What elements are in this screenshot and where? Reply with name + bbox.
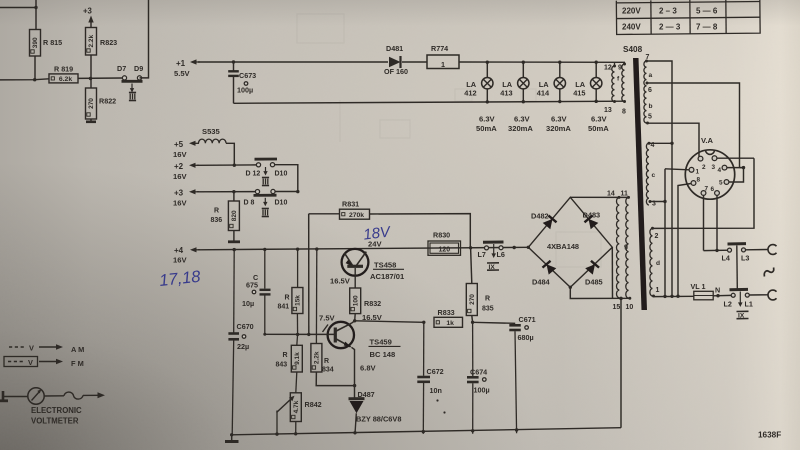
svg-text:BC 148: BC 148	[370, 350, 396, 359]
svg-text:C673: C673	[239, 71, 256, 80]
svg-text:C671: C671	[519, 315, 536, 324]
svg-text:D485: D485	[585, 278, 603, 287]
svg-text:R842: R842	[305, 400, 322, 409]
svg-text:VL 1: VL 1	[691, 282, 706, 291]
svg-text:11: 11	[621, 191, 629, 198]
svg-text:16V: 16V	[173, 199, 187, 208]
svg-text:R774: R774	[431, 44, 448, 53]
svg-text:22µ: 22µ	[237, 342, 249, 351]
svg-text:15: 15	[613, 304, 621, 311]
svg-text:9.1k: 9.1k	[294, 352, 301, 365]
svg-text:R: R	[485, 296, 490, 303]
svg-text:9: 9	[618, 65, 622, 72]
svg-text:L2: L2	[724, 300, 732, 309]
svg-text:D481: D481	[386, 44, 403, 53]
svg-text:820: 820	[231, 210, 238, 221]
svg-text:D483: D483	[583, 211, 601, 220]
svg-text:S535: S535	[202, 127, 221, 136]
svg-text:R: R	[324, 358, 329, 365]
svg-text:C674: C674	[470, 368, 487, 377]
svg-text:D482: D482	[531, 212, 549, 221]
svg-text:AC187/01: AC187/01	[370, 272, 405, 281]
svg-text:+5: +5	[174, 140, 184, 149]
svg-text:L7: L7	[478, 250, 486, 259]
svg-text:C670: C670	[237, 322, 254, 331]
svg-text:R830: R830	[433, 231, 450, 240]
svg-text:4: 4	[718, 167, 722, 174]
svg-text:5 — 6: 5 — 6	[696, 7, 718, 16]
svg-text:100: 100	[352, 295, 359, 306]
svg-text:F M: F M	[71, 359, 84, 368]
svg-text:V: V	[28, 358, 33, 367]
svg-text:b: b	[649, 103, 653, 110]
svg-text:4XBA148: 4XBA148	[547, 242, 579, 251]
svg-text:R823: R823	[100, 38, 117, 47]
svg-text:D9: D9	[134, 64, 143, 73]
svg-text:D484: D484	[532, 278, 551, 287]
svg-text:5.5V: 5.5V	[174, 69, 191, 78]
svg-text:15k: 15k	[295, 295, 302, 306]
svg-text:+4: +4	[174, 246, 184, 255]
svg-text:13: 13	[604, 107, 612, 114]
svg-text:415: 415	[573, 88, 585, 97]
svg-text:1: 1	[656, 287, 660, 294]
svg-text:R833: R833	[438, 308, 455, 317]
svg-text:834: 834	[322, 367, 334, 374]
svg-text:d: d	[656, 260, 660, 267]
svg-text:R 815: R 815	[43, 38, 62, 47]
svg-text:390: 390	[32, 37, 39, 48]
svg-text:2.2k: 2.2k	[314, 351, 321, 364]
svg-text:50mA: 50mA	[588, 124, 609, 133]
svg-text:8: 8	[697, 177, 701, 184]
svg-text:10n: 10n	[430, 386, 442, 395]
svg-text:2.2k: 2.2k	[88, 34, 95, 47]
svg-text:VOLTMETER: VOLTMETER	[31, 417, 79, 426]
svg-text:100µ: 100µ	[474, 385, 490, 394]
svg-text:1k: 1k	[446, 320, 454, 327]
svg-text:R: R	[285, 295, 290, 302]
svg-text:413: 413	[500, 88, 512, 97]
svg-text:6.3V: 6.3V	[591, 115, 608, 124]
svg-text:8: 8	[622, 109, 626, 116]
svg-text:675: 675	[246, 281, 258, 290]
svg-text:835: 835	[482, 306, 494, 313]
svg-text:IX: IX	[738, 313, 745, 320]
svg-text:240V: 240V	[622, 23, 641, 32]
svg-text:g: g	[624, 243, 628, 250]
svg-text:50mA: 50mA	[476, 124, 497, 133]
svg-text:a: a	[649, 72, 653, 79]
svg-text:412: 412	[464, 88, 476, 97]
svg-text:OF 160: OF 160	[384, 67, 408, 76]
svg-text:+3: +3	[83, 7, 93, 16]
svg-text:841: 841	[278, 304, 290, 311]
svg-text:270: 270	[88, 98, 95, 109]
svg-text:7: 7	[705, 186, 709, 193]
svg-text:R: R	[214, 208, 219, 215]
svg-text:414: 414	[537, 88, 550, 97]
svg-text:V: V	[29, 344, 34, 353]
svg-text:R822: R822	[99, 97, 116, 106]
svg-text:5: 5	[719, 180, 723, 187]
svg-text:6.2k: 6.2k	[59, 76, 72, 83]
svg-text:R831: R831	[342, 200, 359, 209]
svg-text:320mA: 320mA	[546, 124, 571, 133]
svg-text:S408: S408	[623, 45, 643, 54]
svg-text:R: R	[283, 352, 288, 359]
svg-text:270k: 270k	[349, 212, 364, 219]
svg-text:24V: 24V	[368, 240, 382, 249]
svg-text:D10: D10	[275, 171, 288, 178]
svg-text:L6: L6	[497, 250, 505, 259]
svg-text:L3: L3	[741, 254, 749, 263]
svg-text:+3: +3	[174, 189, 184, 198]
svg-text:16V: 16V	[173, 172, 187, 181]
svg-text:7.5V: 7.5V	[319, 314, 336, 323]
svg-text:TS459: TS459	[370, 338, 392, 347]
svg-text:10µ: 10µ	[242, 299, 254, 308]
svg-text:c: c	[652, 172, 656, 179]
svg-text:120: 120	[438, 246, 450, 253]
svg-text:C672: C672	[427, 367, 444, 376]
svg-text:BZY 88/C6V8: BZY 88/C6V8	[356, 415, 401, 424]
svg-text:IX: IX	[489, 264, 496, 271]
svg-text:D 8: D 8	[244, 200, 255, 207]
svg-text:6.3V: 6.3V	[479, 115, 496, 124]
svg-text:680µ: 680µ	[518, 333, 534, 342]
svg-text:5: 5	[648, 114, 652, 121]
svg-text:1: 1	[696, 169, 700, 176]
svg-text:V.A: V.A	[701, 136, 713, 145]
svg-text:N: N	[715, 286, 720, 295]
svg-text:1: 1	[441, 60, 445, 69]
svg-text:2: 2	[702, 164, 706, 171]
svg-text:+1: +1	[176, 59, 186, 68]
svg-text:L4: L4	[722, 254, 730, 263]
svg-text:6: 6	[711, 186, 715, 193]
svg-text:ELECTRONIC: ELECTRONIC	[31, 406, 82, 415]
svg-text:R832: R832	[364, 299, 381, 308]
svg-text:2: 2	[655, 233, 659, 240]
svg-text:D10: D10	[275, 200, 288, 207]
svg-text:2 – 3: 2 – 3	[659, 7, 677, 16]
svg-text:L1: L1	[745, 300, 753, 309]
svg-text:6.3V: 6.3V	[514, 115, 531, 124]
svg-text:320mA: 320mA	[508, 124, 533, 133]
svg-text:100µ: 100µ	[237, 86, 253, 95]
svg-text:TS458: TS458	[374, 261, 396, 270]
svg-text:7 — 8: 7 — 8	[696, 23, 718, 32]
svg-text:4.7k: 4.7k	[293, 400, 300, 413]
svg-text:R 819: R 819	[54, 65, 73, 74]
svg-text:6: 6	[648, 87, 652, 94]
svg-text:6.3V: 6.3V	[551, 115, 568, 124]
svg-text:220V: 220V	[622, 7, 641, 16]
svg-text:3: 3	[712, 164, 716, 171]
svg-text:A M: A M	[71, 345, 84, 354]
svg-text:1638F: 1638F	[758, 431, 781, 440]
svg-text:14: 14	[607, 191, 615, 198]
svg-text:D 12: D 12	[246, 171, 261, 178]
svg-text:836: 836	[211, 217, 223, 224]
svg-text:16V: 16V	[173, 150, 187, 159]
svg-text:843: 843	[276, 362, 288, 369]
svg-text:D7: D7	[117, 64, 126, 73]
svg-text:2 — 3: 2 — 3	[659, 23, 681, 32]
svg-text:16.5V: 16.5V	[330, 277, 351, 286]
svg-text:270: 270	[469, 294, 476, 305]
svg-text:16V: 16V	[173, 256, 187, 265]
svg-text:+2: +2	[174, 162, 184, 171]
svg-text:6.8V: 6.8V	[360, 364, 377, 373]
svg-text:10: 10	[626, 304, 634, 311]
svg-text:12: 12	[604, 65, 612, 72]
